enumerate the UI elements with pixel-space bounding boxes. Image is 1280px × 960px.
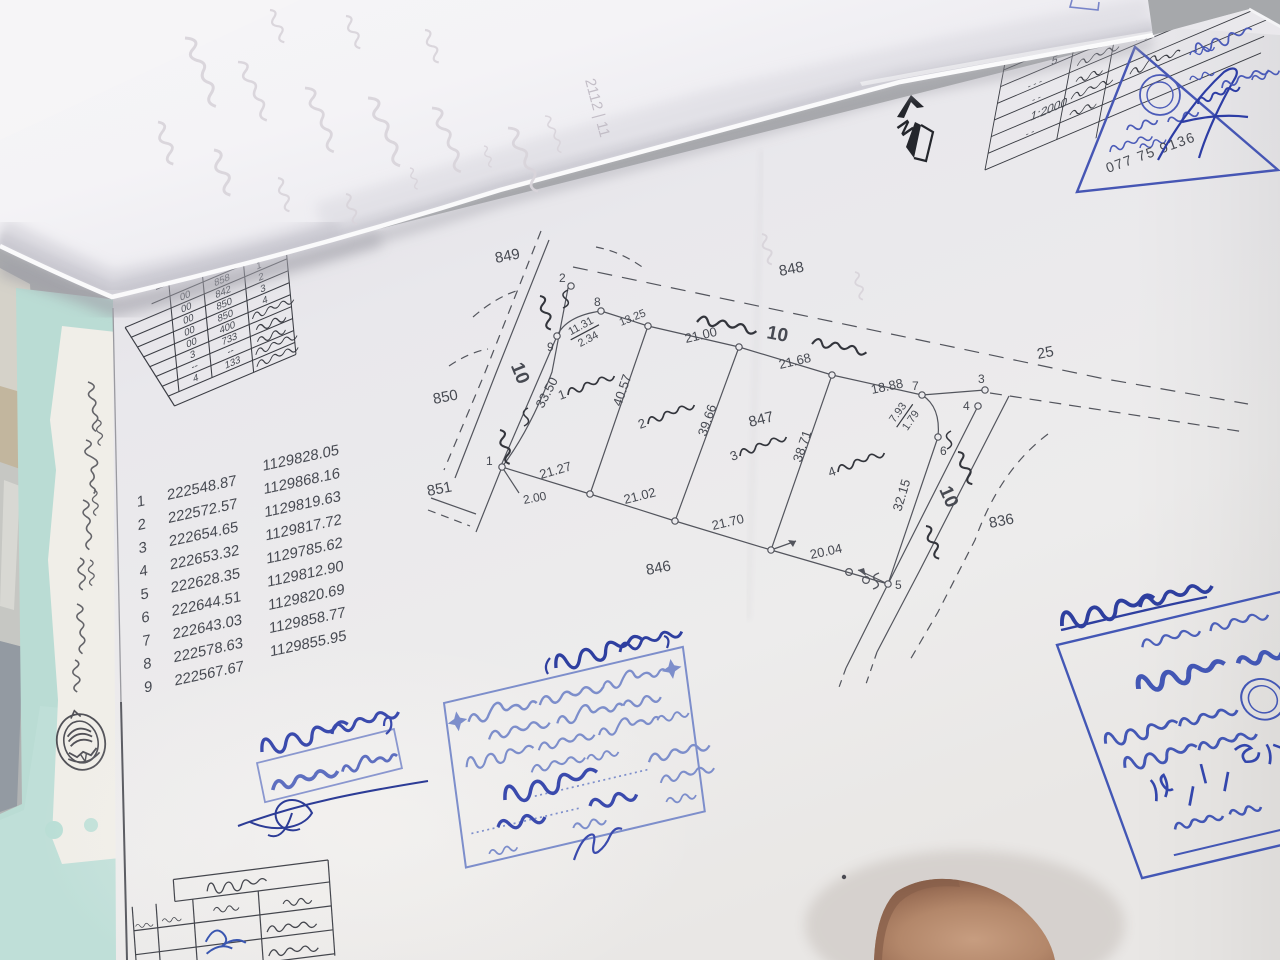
svg-text:9: 9: [547, 340, 554, 354]
svg-text:8: 8: [594, 295, 601, 309]
svg-text:3: 3: [138, 539, 147, 558]
svg-text:9: 9: [144, 678, 153, 697]
svg-text:25: 25: [1036, 343, 1056, 363]
svg-text:5: 5: [140, 585, 149, 604]
svg-text:10: 10: [765, 322, 790, 347]
svg-text:6: 6: [141, 608, 150, 627]
svg-text:4: 4: [963, 399, 970, 413]
svg-text:4: 4: [139, 562, 148, 581]
svg-text:1: 1: [486, 454, 493, 468]
svg-text:7: 7: [142, 631, 151, 650]
svg-text:2: 2: [137, 515, 146, 534]
svg-text:7: 7: [912, 379, 919, 393]
svg-text:3: 3: [978, 372, 985, 386]
svg-text:1: 1: [136, 492, 145, 511]
svg-text:2: 2: [559, 271, 566, 285]
svg-text:8: 8: [143, 655, 152, 674]
svg-text:6: 6: [940, 444, 947, 458]
svg-text:5: 5: [895, 578, 902, 592]
